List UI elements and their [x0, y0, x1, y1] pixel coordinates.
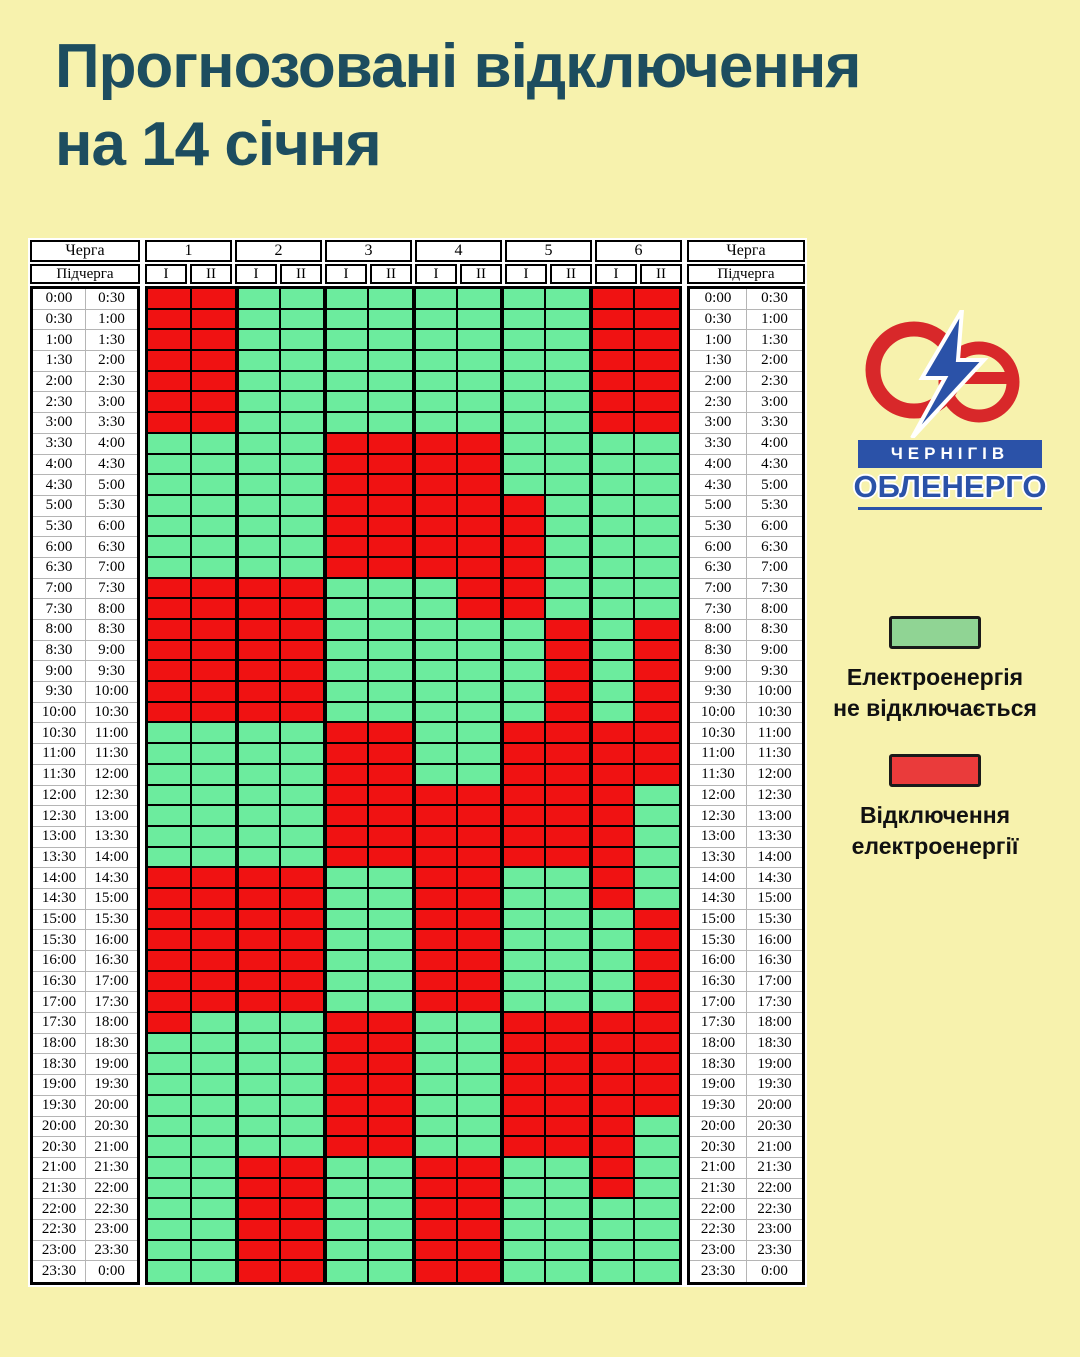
time-cell: 13:30 — [746, 827, 802, 848]
status-cell — [192, 1075, 236, 1096]
status-cell — [148, 786, 192, 807]
time-cell: 11:30 — [85, 744, 137, 765]
time-cell: 19:30 — [690, 1096, 746, 1117]
time-cell: 16:30 — [690, 972, 746, 993]
status-cell — [237, 703, 281, 724]
time-cell: 15:30 — [746, 910, 802, 931]
time-cell: 5:30 — [33, 517, 85, 538]
status-cell — [369, 475, 413, 496]
queue-header-cell: 3 — [325, 240, 412, 262]
status-cell — [192, 930, 236, 951]
time-cell: 13:30 — [85, 827, 137, 848]
status-cell — [591, 1199, 635, 1220]
time-cell: 8:00 — [690, 620, 746, 641]
status-cell — [591, 310, 635, 331]
status-cell — [502, 1241, 546, 1262]
status-cell — [192, 827, 236, 848]
time-cell: 2:00 — [690, 372, 746, 393]
status-cell — [635, 1137, 679, 1158]
status-cell — [237, 455, 281, 476]
status-cell — [237, 392, 281, 413]
subqueue-header-cell: II — [280, 264, 322, 284]
status-cell — [502, 1034, 546, 1055]
queue-header-cell: 6 — [595, 240, 682, 262]
status-cell — [458, 1241, 502, 1262]
status-cell — [281, 806, 325, 827]
time-cell: 17:00 — [85, 972, 137, 993]
status-cell — [414, 1158, 458, 1179]
status-cell — [635, 1158, 679, 1179]
status-cell — [458, 351, 502, 372]
status-cell — [369, 1261, 413, 1282]
time-cell: 14:00 — [746, 848, 802, 869]
status-cell — [325, 930, 369, 951]
status-cell — [148, 930, 192, 951]
subqueue-header-cell: II — [460, 264, 502, 284]
time-cell: 21:30 — [690, 1179, 746, 1200]
status-cell — [281, 413, 325, 434]
status-cell — [635, 599, 679, 620]
status-cell — [237, 765, 281, 786]
time-cell: 7:30 — [33, 599, 85, 620]
status-cell — [325, 455, 369, 476]
logo-city-banner: ЧЕРНІГІВ — [858, 440, 1042, 468]
status-cell — [148, 848, 192, 869]
status-cell — [148, 434, 192, 455]
time-cell: 10:30 — [746, 703, 802, 724]
time-cell: 15:00 — [746, 889, 802, 910]
status-cell — [546, 1013, 590, 1034]
status-cell — [546, 558, 590, 579]
status-cell — [458, 786, 502, 807]
status-cell — [458, 537, 502, 558]
status-cell — [414, 475, 458, 496]
time-cell: 11:00 — [690, 744, 746, 765]
status-cell — [635, 517, 679, 538]
status-cell — [369, 806, 413, 827]
status-cell — [281, 579, 325, 600]
status-cell — [148, 910, 192, 931]
status-cell — [148, 1137, 192, 1158]
status-cell — [635, 620, 679, 641]
status-cell — [148, 1261, 192, 1282]
status-cell — [635, 1013, 679, 1034]
status-cell — [546, 703, 590, 724]
status-cell — [458, 517, 502, 538]
status-cell — [281, 889, 325, 910]
status-cell — [458, 579, 502, 600]
status-cell — [591, 1220, 635, 1241]
status-cell — [502, 641, 546, 662]
status-cell — [325, 1117, 369, 1138]
chernihiv-oblenergo-logo: ЧЕРНІГІВ ОБЛЕНЕРГО — [852, 310, 1048, 510]
status-cell — [546, 889, 590, 910]
status-cell — [237, 1013, 281, 1034]
status-cell — [502, 786, 546, 807]
status-cell — [591, 806, 635, 827]
status-cell — [458, 1096, 502, 1117]
status-cell — [635, 682, 679, 703]
status-cell — [546, 517, 590, 538]
status-cell — [635, 289, 679, 310]
status-cell — [502, 744, 546, 765]
time-cell: 10:30 — [85, 703, 137, 724]
time-cell: 16:00 — [746, 930, 802, 951]
status-cell — [325, 889, 369, 910]
status-cell — [414, 765, 458, 786]
status-cell — [414, 1179, 458, 1200]
status-cell — [414, 848, 458, 869]
status-cell — [414, 1241, 458, 1262]
status-cell — [325, 392, 369, 413]
status-cell — [546, 392, 590, 413]
status-cell — [237, 310, 281, 331]
status-cell — [192, 413, 236, 434]
status-cell — [502, 682, 546, 703]
queue-corner-label-left: Черга — [30, 240, 140, 262]
status-cell — [458, 1179, 502, 1200]
status-cell — [237, 330, 281, 351]
time-cell: 21:30 — [33, 1179, 85, 1200]
status-cell — [546, 455, 590, 476]
status-cell — [148, 413, 192, 434]
status-cell — [237, 827, 281, 848]
time-cell: 10:30 — [690, 723, 746, 744]
status-cell — [148, 806, 192, 827]
status-cell — [591, 517, 635, 538]
status-cell — [546, 1137, 590, 1158]
status-cell — [591, 537, 635, 558]
status-cell — [148, 868, 192, 889]
status-cell — [237, 372, 281, 393]
status-cell — [281, 289, 325, 310]
status-cell — [192, 661, 236, 682]
status-cell — [148, 330, 192, 351]
status-cell — [148, 475, 192, 496]
time-cell: 22:30 — [85, 1199, 137, 1220]
status-cell — [281, 1220, 325, 1241]
status-cell — [325, 868, 369, 889]
status-cell — [369, 289, 413, 310]
time-cell: 12:30 — [746, 786, 802, 807]
status-cell — [281, 1158, 325, 1179]
status-cell — [591, 1137, 635, 1158]
status-cell — [281, 475, 325, 496]
status-cell — [369, 310, 413, 331]
status-cell — [591, 848, 635, 869]
status-cell — [281, 1096, 325, 1117]
status-cell — [502, 661, 546, 682]
status-cell — [591, 682, 635, 703]
status-cell — [635, 1054, 679, 1075]
status-cell — [458, 558, 502, 579]
status-cell — [546, 1034, 590, 1055]
time-cell: 1:30 — [33, 351, 85, 372]
time-cell: 17:30 — [746, 992, 802, 1013]
status-cell — [325, 434, 369, 455]
status-cell — [369, 1096, 413, 1117]
status-cell — [281, 1034, 325, 1055]
status-cell — [369, 1241, 413, 1262]
status-cell — [192, 765, 236, 786]
status-cell — [148, 889, 192, 910]
status-cell — [148, 372, 192, 393]
status-cell — [325, 558, 369, 579]
status-cell — [502, 1199, 546, 1220]
status-cell — [502, 537, 546, 558]
status-cell — [192, 620, 236, 641]
status-cell — [635, 930, 679, 951]
status-cell — [281, 910, 325, 931]
time-cell: 6:00 — [33, 537, 85, 558]
status-cell — [458, 682, 502, 703]
status-cell — [369, 413, 413, 434]
time-cell: 20:30 — [85, 1117, 137, 1138]
status-cell — [325, 1013, 369, 1034]
status-cell — [502, 827, 546, 848]
status-cell — [635, 806, 679, 827]
status-cell — [546, 1220, 590, 1241]
status-cell — [325, 992, 369, 1013]
status-cell — [192, 723, 236, 744]
time-cell: 20:00 — [746, 1096, 802, 1117]
status-cell — [148, 661, 192, 682]
status-cell — [458, 310, 502, 331]
status-cell — [237, 972, 281, 993]
status-cell — [546, 992, 590, 1013]
status-cell — [414, 537, 458, 558]
time-cell: 4:30 — [746, 455, 802, 476]
status-cell — [502, 1013, 546, 1034]
time-cell: 16:30 — [85, 951, 137, 972]
status-cell — [281, 351, 325, 372]
status-cell — [237, 1034, 281, 1055]
status-cell — [237, 910, 281, 931]
queue-header-cell: 4 — [415, 240, 502, 262]
status-cell — [369, 1179, 413, 1200]
status-cell — [414, 620, 458, 641]
status-cell — [148, 972, 192, 993]
status-cell — [502, 1179, 546, 1200]
status-cell — [591, 868, 635, 889]
status-cell — [414, 372, 458, 393]
status-cell — [192, 786, 236, 807]
time-cell: 10:00 — [33, 703, 85, 724]
status-cell — [414, 1054, 458, 1075]
status-cell — [281, 744, 325, 765]
status-cell — [237, 599, 281, 620]
status-cell — [148, 579, 192, 600]
status-cell — [281, 682, 325, 703]
time-cell: 9:30 — [690, 682, 746, 703]
time-cell: 4:30 — [85, 455, 137, 476]
status-cell — [237, 951, 281, 972]
status-cell — [591, 765, 635, 786]
status-cell — [546, 951, 590, 972]
status-cell — [192, 682, 236, 703]
time-cell: 5:00 — [33, 496, 85, 517]
status-cell — [414, 392, 458, 413]
status-cell — [192, 392, 236, 413]
status-cell — [546, 579, 590, 600]
time-cell: 23:30 — [33, 1261, 85, 1282]
time-cell: 14:30 — [85, 868, 137, 889]
time-cell: 1:30 — [85, 330, 137, 351]
status-cell — [458, 848, 502, 869]
status-cell — [325, 1158, 369, 1179]
time-cell: 4:00 — [746, 434, 802, 455]
status-cell — [635, 1096, 679, 1117]
status-cell — [546, 806, 590, 827]
status-cell — [546, 827, 590, 848]
status-cell — [325, 661, 369, 682]
time-cell: 23:00 — [746, 1220, 802, 1241]
status-cell — [192, 1137, 236, 1158]
status-cell — [591, 351, 635, 372]
status-cell — [369, 1117, 413, 1138]
status-cell — [148, 392, 192, 413]
status-cell — [325, 641, 369, 662]
time-cell: 2:30 — [33, 392, 85, 413]
status-cell — [148, 1034, 192, 1055]
status-cell — [237, 641, 281, 662]
time-cell: 15:00 — [690, 910, 746, 931]
status-cell — [192, 848, 236, 869]
time-cell: 20:00 — [33, 1117, 85, 1138]
status-cell — [325, 413, 369, 434]
status-cell — [458, 1013, 502, 1034]
status-cell — [369, 517, 413, 538]
time-cell: 11:30 — [690, 765, 746, 786]
status-cell — [414, 1199, 458, 1220]
time-cell: 7:00 — [33, 579, 85, 600]
time-cell: 16:00 — [33, 951, 85, 972]
time-cell: 7:00 — [690, 579, 746, 600]
outage-schedule-table: Черга Підчерга 0:000:300:301:001:001:301… — [28, 238, 807, 1287]
status-cell — [458, 1075, 502, 1096]
legend-swatch-power-off — [889, 754, 981, 787]
status-cell — [369, 992, 413, 1013]
subqueue-header-cell: II — [550, 264, 592, 284]
status-cell — [237, 413, 281, 434]
status-cell — [237, 434, 281, 455]
status-cell — [458, 496, 502, 517]
status-cell — [591, 599, 635, 620]
status-cell — [237, 723, 281, 744]
time-cell: 21:00 — [33, 1158, 85, 1179]
status-cell — [281, 848, 325, 869]
time-cell: 12:00 — [746, 765, 802, 786]
time-cell: 14:00 — [690, 868, 746, 889]
time-cell: 10:30 — [33, 723, 85, 744]
status-cell — [546, 848, 590, 869]
time-cell: 3:30 — [746, 413, 802, 434]
status-cell — [148, 1117, 192, 1138]
status-cell — [414, 579, 458, 600]
status-cell — [458, 1261, 502, 1282]
time-cell: 20:30 — [746, 1117, 802, 1138]
status-cell — [502, 1220, 546, 1241]
status-cell — [325, 579, 369, 600]
status-cell — [369, 1137, 413, 1158]
status-cell — [281, 372, 325, 393]
time-cell: 22:30 — [690, 1220, 746, 1241]
time-cell: 15:00 — [33, 910, 85, 931]
status-cell — [458, 1199, 502, 1220]
status-cell — [281, 930, 325, 951]
status-cell — [502, 1137, 546, 1158]
status-cell — [148, 496, 192, 517]
status-cell — [546, 1241, 590, 1262]
time-cell: 12:30 — [33, 806, 85, 827]
status-cell — [325, 517, 369, 538]
queue-header-cell: 5 — [505, 240, 592, 262]
status-cell — [325, 806, 369, 827]
time-cell: 13:00 — [33, 827, 85, 848]
time-cell: 7:00 — [85, 558, 137, 579]
status-cell — [591, 455, 635, 476]
time-cell: 6:00 — [85, 517, 137, 538]
status-cell — [502, 517, 546, 538]
status-cell — [635, 641, 679, 662]
status-cell — [192, 579, 236, 600]
time-cell: 2:30 — [85, 372, 137, 393]
time-cell: 8:00 — [746, 599, 802, 620]
time-cell: 0:30 — [746, 289, 802, 310]
time-cell: 5:30 — [690, 517, 746, 538]
status-cell — [591, 558, 635, 579]
status-cell — [414, 289, 458, 310]
status-cell — [148, 1013, 192, 1034]
time-cell: 23:00 — [85, 1220, 137, 1241]
time-cell: 19:30 — [33, 1096, 85, 1117]
status-cell — [414, 806, 458, 827]
time-cell: 19:00 — [33, 1075, 85, 1096]
status-cell — [458, 951, 502, 972]
status-cell — [502, 310, 546, 331]
subqueue-header-cell: I — [415, 264, 457, 284]
status-cell — [458, 330, 502, 351]
status-cell — [192, 1241, 236, 1262]
status-cell — [502, 434, 546, 455]
time-cell: 21:00 — [85, 1137, 137, 1158]
time-cell: 0:00 — [690, 289, 746, 310]
status-cell — [148, 682, 192, 703]
status-cell — [369, 723, 413, 744]
status-cell — [414, 455, 458, 476]
time-cell: 9:00 — [33, 661, 85, 682]
status-cell — [325, 786, 369, 807]
status-cell — [237, 848, 281, 869]
status-cell — [414, 558, 458, 579]
status-cell — [458, 1117, 502, 1138]
queue-corner-label-right: Черга — [687, 240, 805, 262]
status-cell — [237, 1075, 281, 1096]
status-cell — [546, 351, 590, 372]
status-cell — [414, 1075, 458, 1096]
status-cell — [281, 1013, 325, 1034]
legend-label-power-off: Відключення електроенергії — [818, 800, 1052, 862]
time-cell: 2:00 — [746, 351, 802, 372]
status-cell — [325, 1241, 369, 1262]
status-cell — [192, 1220, 236, 1241]
status-cell — [546, 723, 590, 744]
time-cell: 6:30 — [85, 537, 137, 558]
time-cell: 2:30 — [690, 392, 746, 413]
queue-header-cell: 1 — [145, 240, 232, 262]
status-cell — [281, 951, 325, 972]
status-cell — [414, 972, 458, 993]
